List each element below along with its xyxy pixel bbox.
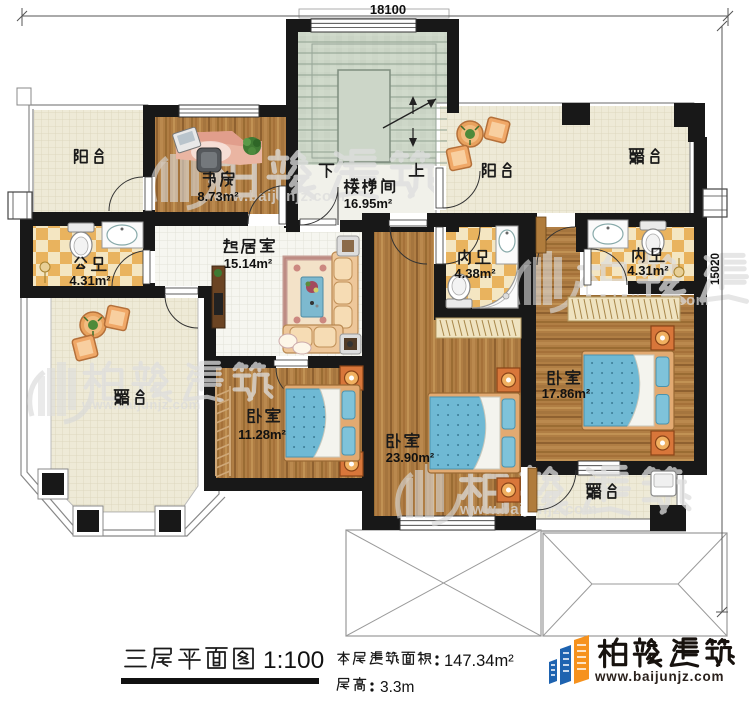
svg-text:8.73m²: 8.73m² xyxy=(197,189,239,204)
svg-text:15020: 15020 xyxy=(710,253,722,285)
svg-text:18100: 18100 xyxy=(370,2,406,17)
svg-text:4.31m²: 4.31m² xyxy=(69,273,111,288)
svg-text:3.3m: 3.3m xyxy=(380,679,414,696)
svg-text:4.38m²: 4.38m² xyxy=(454,266,496,281)
svg-text:16.95m²: 16.95m² xyxy=(344,196,393,211)
svg-text:www.baijunjz.com: www.baijunjz.com xyxy=(594,669,724,684)
svg-text:17.86m²: 17.86m² xyxy=(542,386,591,401)
svg-text:147.34m²: 147.34m² xyxy=(444,652,514,670)
svg-text:4.31m²: 4.31m² xyxy=(627,263,669,278)
svg-text:15.14m²: 15.14m² xyxy=(224,256,273,271)
svg-text:1:100: 1:100 xyxy=(263,647,324,674)
svg-text:11.28m²: 11.28m² xyxy=(238,427,286,442)
svg-text:23.90m²: 23.90m² xyxy=(386,450,435,465)
